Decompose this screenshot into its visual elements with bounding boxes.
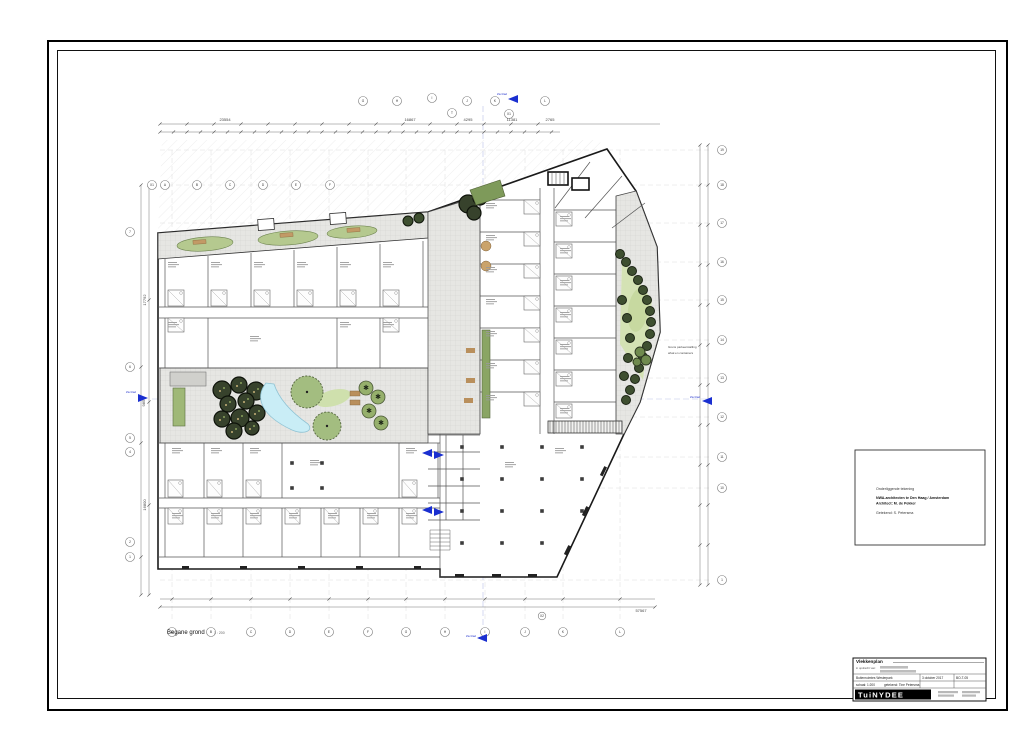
grid-bubble-label: X2 bbox=[540, 614, 544, 618]
grid-bubble-label: F bbox=[329, 183, 331, 187]
svg-text:afval en containers: afval en containers bbox=[668, 351, 694, 355]
drawn-by-label: getekend: Tine Petersma bbox=[884, 683, 920, 687]
grid-bubble-label: 13 bbox=[720, 376, 724, 380]
svg-text:✱: ✱ bbox=[363, 384, 369, 392]
grid-bubble-label: I bbox=[485, 630, 486, 634]
scale-label: schaal: 1:200 bbox=[856, 683, 875, 687]
floor-plan-drawing: ✱✱✱✱ bbox=[0, 0, 1024, 751]
svg-text:✱: ✱ bbox=[366, 407, 372, 415]
zie-blad-label: Zie blad bbox=[466, 634, 476, 638]
svg-text:17792: 17792 bbox=[142, 294, 147, 306]
drawing-sheet: ✱✱✱✱ bbox=[0, 0, 1024, 751]
svg-text:23554: 23554 bbox=[219, 117, 231, 122]
zie-blad-label: Zie blad bbox=[126, 390, 136, 394]
grid-bubble-label: 12 bbox=[720, 415, 724, 419]
sheet-number: BO-T-05 bbox=[956, 676, 968, 680]
zie-blad-label: Zie blad bbox=[497, 92, 507, 96]
title-block-title: Vlekkenplan bbox=[856, 659, 883, 664]
tuinydee-logo-text: TuiNYDEE bbox=[858, 691, 904, 700]
project-name: Buitenruimtes Westerpark bbox=[856, 676, 893, 680]
grid-bubble-label: B bbox=[210, 630, 212, 634]
grid-bubble-label: 1 bbox=[721, 578, 723, 582]
grid-bubble-label: 4 bbox=[129, 450, 131, 454]
plan-scale: 1 : 200 bbox=[214, 631, 225, 635]
grid-bubble-label: 11 bbox=[720, 455, 724, 459]
grid-bubble-label: 19 bbox=[720, 148, 724, 152]
svg-text:57567: 57567 bbox=[635, 608, 647, 613]
grid-bubble-label: 6 bbox=[129, 365, 131, 369]
svg-text:Getekend: S. Petersma: Getekend: S. Petersma bbox=[876, 511, 913, 515]
svg-text:4295: 4295 bbox=[464, 117, 474, 122]
title-block: Vlekkenplan in opdracht van: Buitenruimt… bbox=[853, 658, 986, 701]
grid-bubble-label: 5 bbox=[129, 436, 131, 440]
svg-text:16867: 16867 bbox=[404, 117, 416, 122]
grid-bubble-label: 18 bbox=[720, 183, 724, 187]
grid-bubble-label: 17 bbox=[720, 221, 724, 225]
grid-bubble-label: L bbox=[544, 99, 546, 103]
section-marker-icon bbox=[508, 95, 518, 103]
grid-bubble-label: X1 bbox=[507, 112, 511, 116]
svg-text:NWA-architecten te Den Haag /: NWA-architecten te Den Haag / Amsterdam bbox=[876, 496, 949, 500]
grid-bubble-label: X1 bbox=[150, 183, 154, 187]
svg-text:Onderliggende tekening: Onderliggende tekening bbox=[876, 487, 914, 491]
grid-bubble-label: 10 bbox=[720, 486, 724, 490]
grid-bubble-label: 16 bbox=[720, 260, 724, 264]
grid-bubble-label: 2 bbox=[129, 540, 131, 544]
svg-text:Grens parkeerstalling: Grens parkeerstalling bbox=[668, 345, 697, 349]
grid-bubble-label: 1 bbox=[129, 555, 131, 559]
svg-text:✱: ✱ bbox=[375, 393, 381, 401]
grid-bubble-label: B bbox=[196, 183, 198, 187]
drawing-date: 3 oktober 2017 bbox=[922, 676, 943, 680]
note-box: Onderliggende tekening NWA-architecten t… bbox=[855, 450, 985, 545]
grid-bubble-label: F bbox=[367, 630, 369, 634]
grid-bubble-label: E bbox=[328, 630, 330, 634]
plan-title: Begane grond bbox=[167, 630, 205, 636]
client-label: in opdracht van: bbox=[856, 666, 876, 670]
grid-bubble-label: T bbox=[451, 111, 453, 115]
grid-bubble-label: 14 bbox=[720, 338, 724, 342]
svg-text:2765: 2765 bbox=[546, 117, 556, 122]
svg-text:Architect: M. de Pekker: Architect: M. de Pekker bbox=[876, 502, 916, 506]
grid-bubble-label: I bbox=[432, 96, 433, 100]
grid-bubble-label: E bbox=[295, 183, 297, 187]
zie-blad-label: Zie blad bbox=[690, 395, 700, 399]
section-marker-icon bbox=[702, 397, 712, 405]
grid-bubble-label: 15 bbox=[720, 298, 724, 302]
grid-bubble-label: 7 bbox=[129, 230, 131, 234]
svg-text:16800: 16800 bbox=[142, 499, 147, 511]
svg-text:✱: ✱ bbox=[378, 419, 384, 427]
grid-bubble-label: L bbox=[619, 630, 621, 634]
